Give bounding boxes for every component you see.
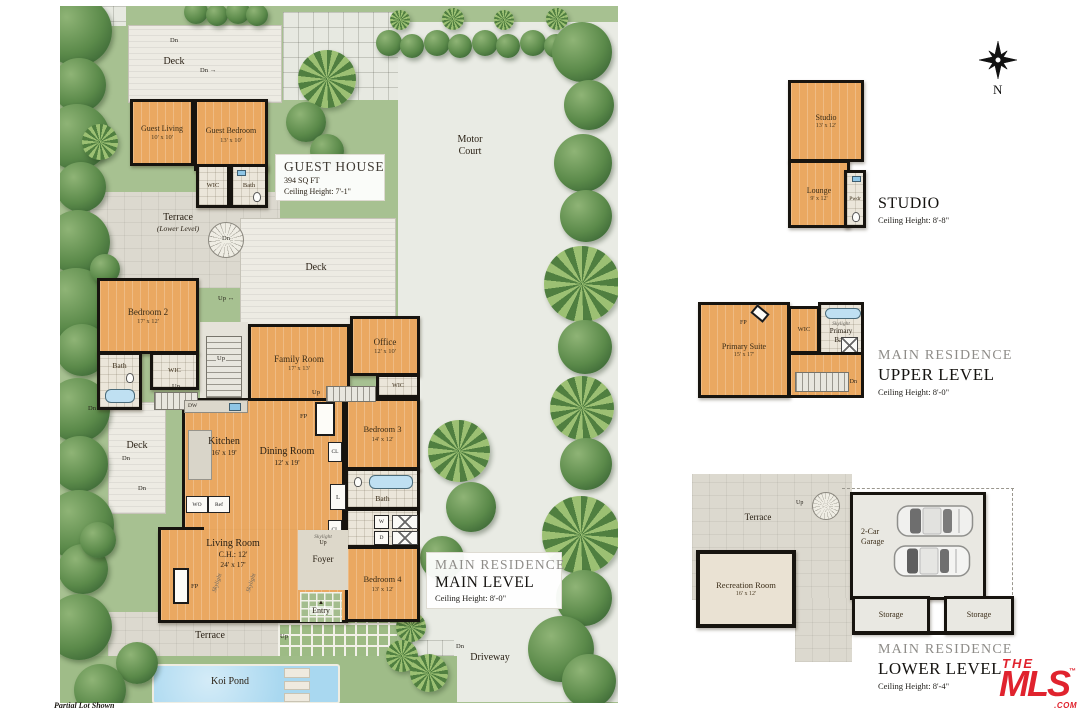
dn-label: Dn — [170, 38, 178, 45]
site-plan: Guest Living 10' x 10' Guest Bedroom 13'… — [60, 6, 618, 703]
kitchen-sink — [229, 403, 241, 411]
room-label: Bath — [243, 182, 255, 189]
stair-label: Up — [172, 384, 180, 391]
linen-closet: L — [330, 484, 346, 510]
motor-court-label: Motor Court — [438, 134, 502, 158]
car-top-view — [896, 504, 974, 538]
tree — [60, 436, 108, 492]
hedge — [496, 34, 520, 58]
hedge — [448, 34, 472, 58]
tree — [560, 190, 612, 242]
themls-logo: THE MLS™ .COM — [999, 658, 1079, 710]
room-studio: Studio 13' x 12' — [788, 80, 864, 162]
toilet-fixture — [354, 477, 362, 487]
stairs-dn — [795, 372, 849, 392]
stair-label: Up — [216, 356, 226, 363]
dn-label: Dn → — [200, 68, 216, 75]
entry-label: Entry — [310, 606, 332, 615]
palm-tree — [442, 8, 464, 30]
tree — [552, 22, 612, 82]
room-label: Bath — [375, 495, 389, 504]
hedge — [376, 30, 402, 56]
room-label: Guest Living — [141, 124, 183, 133]
room-storage-1: Storage — [852, 596, 930, 634]
room-recreation: Recreation Room 16' x 12' — [696, 550, 796, 628]
stairs-center — [206, 336, 242, 398]
palm-tree — [410, 654, 448, 692]
entry-walk: ▲ Entry — [300, 592, 342, 622]
guest-house-ceiling: Ceiling Height: 7'-1" — [284, 187, 376, 196]
tree — [246, 6, 268, 26]
floor-plan-sheet: Guest Living 10' x 10' Guest Bedroom 13'… — [0, 0, 1080, 720]
room-label: Guest Bedroom — [206, 126, 256, 135]
main-deck-label: Deck — [286, 262, 346, 274]
skylight-panel — [392, 531, 418, 545]
room-wic-upper: WIC — [788, 306, 820, 354]
room-label: WIC — [392, 383, 404, 390]
palm-tree — [428, 420, 490, 482]
room-guest-bedroom: Guest Bedroom 13' x 10' — [194, 99, 268, 171]
room-dims: 13' x 10' — [220, 137, 242, 144]
stair-label: Dn — [850, 379, 857, 385]
tree — [206, 6, 228, 26]
studio-title: STUDIO Ceiling Height: 8'-8" — [878, 194, 949, 226]
room-label: Bedroom 2 — [128, 307, 168, 317]
room-label: Bedroom 3 — [363, 425, 401, 435]
hedge — [400, 34, 424, 58]
fireplace-label: FP — [300, 414, 307, 421]
up-label: Up ↔ — [218, 296, 234, 303]
outline-above — [1012, 488, 1013, 600]
terrace-lower-label: Terrace (Lower Level) — [146, 212, 210, 233]
terrace-label: Terrace — [180, 630, 240, 642]
tree — [562, 654, 616, 703]
compass-north-label: N — [993, 82, 1002, 98]
toilet-fixture — [852, 212, 860, 222]
dining-label: Dining Room 12' x 19' — [256, 446, 318, 467]
lower-terrace-label: Terrace — [728, 512, 788, 523]
tree — [60, 594, 112, 660]
hedge — [520, 30, 546, 56]
stairs-up-office — [326, 386, 376, 402]
tree — [80, 522, 116, 558]
tree — [558, 320, 612, 374]
room-label: Family Room — [274, 354, 324, 364]
guest-house-sqft: 394 SQ FT — [284, 176, 376, 185]
bathtub-fixture — [369, 475, 413, 489]
wall-segment — [158, 527, 204, 530]
stair-label: Up — [319, 540, 326, 546]
skylight-panel — [392, 515, 418, 529]
tree — [60, 6, 112, 66]
closet: CL — [328, 442, 342, 462]
room-dims: 17' x 13' — [288, 365, 310, 372]
room-label: Office — [374, 337, 397, 347]
room-bedroom-2: Bedroom 2 17' x 12' — [97, 278, 199, 354]
room-dims: 14' x 12' — [372, 436, 394, 443]
upper-level-plan: Primary Suite 15' x 17' FP WIC Skylight … — [696, 300, 866, 400]
koi-pond-label: Koi Pond — [200, 676, 260, 688]
hedge — [472, 30, 498, 56]
palm-tree — [390, 10, 410, 30]
tree — [184, 6, 208, 24]
room-dims: 17' x 12' — [137, 318, 159, 325]
palm-tree — [298, 50, 356, 108]
tree — [554, 134, 612, 192]
bathtub-fixture — [825, 308, 861, 319]
up-label: Up — [280, 634, 288, 641]
fireplace-label: FP — [191, 584, 198, 591]
outline-above — [842, 488, 1014, 489]
room-label: Bath — [112, 362, 126, 371]
bathtub-fixture — [105, 389, 135, 403]
palm-tree — [544, 246, 618, 322]
fireplace-label: FP — [740, 320, 747, 326]
sink-fixture — [237, 170, 246, 176]
fireplace-dining — [315, 402, 335, 436]
room-guest-wic: WIC — [196, 164, 230, 208]
side-deck-label: Deck — [107, 440, 167, 452]
room-label: WIC — [207, 182, 220, 189]
fireplace-living — [173, 568, 189, 604]
guest-deck-label: Deck — [144, 56, 204, 68]
stair-label: Up — [312, 390, 320, 397]
side-deck — [108, 402, 166, 514]
dn-label: Dn — [222, 236, 230, 243]
palm-tree — [494, 10, 514, 30]
wall-segment — [852, 631, 1014, 635]
tree — [564, 80, 614, 130]
room-primary-suite: Primary Suite 15' x 17' — [698, 302, 790, 398]
room-bedroom-3: Bedroom 3 14' x 12' — [345, 398, 420, 470]
room-foyer: Skylight Up Foyer — [298, 530, 348, 590]
studio-plan: Studio 13' x 12' Lounge 9' x 12' Pwdr — [786, 78, 878, 230]
washer: W — [374, 515, 389, 529]
up-label: Up — [796, 500, 803, 506]
living-label: Living Room C.H.: 12' 24' x 17' — [200, 538, 266, 569]
room-guest-bath: Bath — [230, 164, 268, 208]
tree — [446, 482, 496, 532]
toilet-fixture — [253, 192, 261, 202]
sink-fixture — [852, 176, 861, 182]
partial-lot-note: Partial Lot Shown — [54, 701, 114, 710]
room-label: Bedroom 4 — [363, 575, 401, 585]
guest-house-name: GUEST HOUSE — [284, 159, 376, 175]
dn-label: Dn — [122, 456, 130, 463]
upper-stairwell: Dn — [788, 352, 864, 398]
room-bath-3: Bath — [345, 468, 420, 510]
room-dims: 12' x 10' — [374, 348, 396, 355]
toilet-fixture — [126, 373, 134, 383]
room-office: Office 12' x 10' — [350, 316, 420, 376]
kitchen-label: Kitchen 16' x 19' — [194, 436, 254, 457]
guest-house-title: GUEST HOUSE 394 SQ FT Ceiling Height: 7'… — [275, 154, 385, 201]
tree — [560, 438, 612, 490]
room-label: WIC — [168, 367, 181, 374]
palm-tree — [550, 376, 614, 440]
room-bedroom-4: Bedroom 4 13' x 12' — [345, 546, 420, 622]
lower-level-title: MAIN RESIDENCE LOWER LEVEL Ceiling Heigh… — [878, 642, 1013, 691]
laundry: W D — [345, 508, 420, 548]
room-dims: 13' x 12' — [372, 586, 394, 593]
hedge — [424, 30, 450, 56]
dn-label: Dn — [456, 644, 464, 651]
upper-level-title: MAIN RESIDENCE UPPER LEVEL Ceiling Heigh… — [878, 348, 1013, 397]
kitchen-counter: DW — [184, 400, 248, 413]
main-level-title: MAIN RESIDENCE MAIN LEVEL Ceiling Height… — [426, 552, 562, 609]
foyer-label: Foyer — [313, 554, 334, 564]
refrigerator: Ref — [208, 496, 230, 513]
room-bath-2: Bath — [97, 352, 142, 410]
dn-label: Dn — [138, 486, 146, 493]
room-powder: Pwdr — [844, 170, 866, 228]
car-top-view — [892, 544, 972, 578]
spiral-stair — [812, 492, 840, 520]
room-dims: 10' x 10' — [151, 134, 173, 141]
palm-tree — [82, 124, 118, 160]
lower-walkway — [795, 598, 852, 662]
room-wic-office: WIC — [376, 374, 420, 398]
dryer: D — [374, 531, 389, 545]
compass-rose-icon — [978, 40, 1018, 80]
driveway-label: Driveway — [458, 652, 522, 664]
room-guest-living: Guest Living 10' x 10' — [130, 99, 194, 166]
dn-label: Dn — [88, 406, 96, 413]
room-lounge: Lounge 9' x 12' — [788, 160, 850, 228]
room-storage-2: Storage — [944, 596, 1014, 634]
warming-oven: WO — [186, 496, 208, 513]
